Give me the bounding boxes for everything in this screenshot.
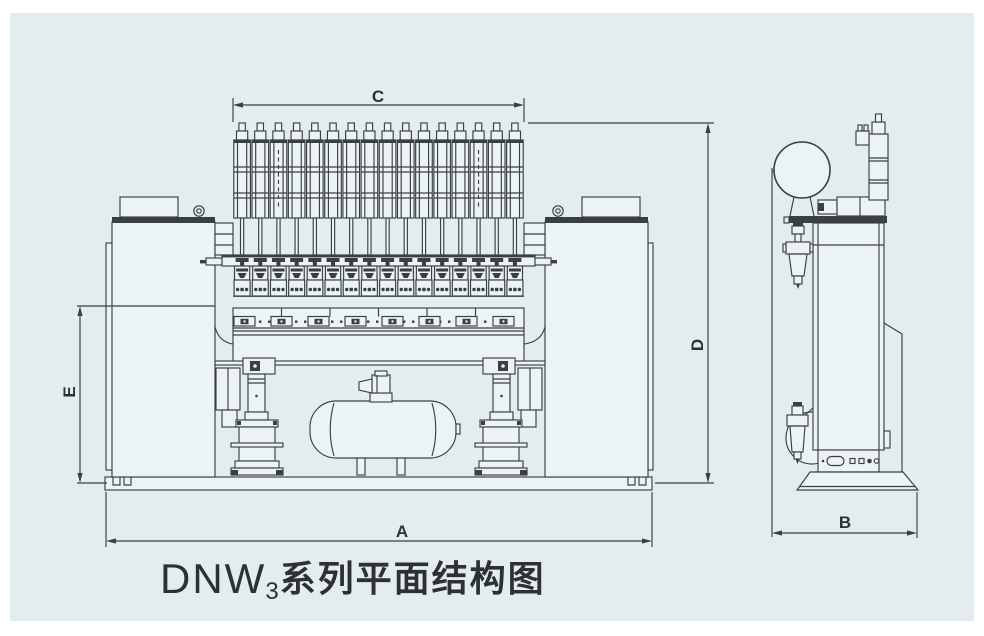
left-tower (106, 197, 215, 477)
page: C A D E (0, 0, 984, 636)
front-base (105, 477, 652, 490)
right-tower (545, 197, 653, 477)
control-panel (818, 450, 879, 472)
dim-d-label: D (688, 339, 707, 351)
structure-diagram: C A D E (0, 0, 984, 636)
title-subscript: 3 (265, 578, 278, 605)
left-top-cover (120, 197, 178, 217)
dim-c-label: C (372, 87, 384, 106)
lower-beam (233, 308, 524, 335)
title-latin: DNW (160, 555, 266, 602)
panel-button-icon (867, 459, 872, 464)
dim-b-label: B (839, 513, 851, 532)
right-top-cover (582, 197, 640, 217)
title-cjk: 系列平面结构图 (280, 558, 546, 599)
dim-e-label: E (60, 386, 79, 397)
dim-a-label: A (396, 522, 408, 541)
page-title: DNW3系列平面结构图 (160, 558, 546, 600)
side-base (797, 472, 918, 490)
